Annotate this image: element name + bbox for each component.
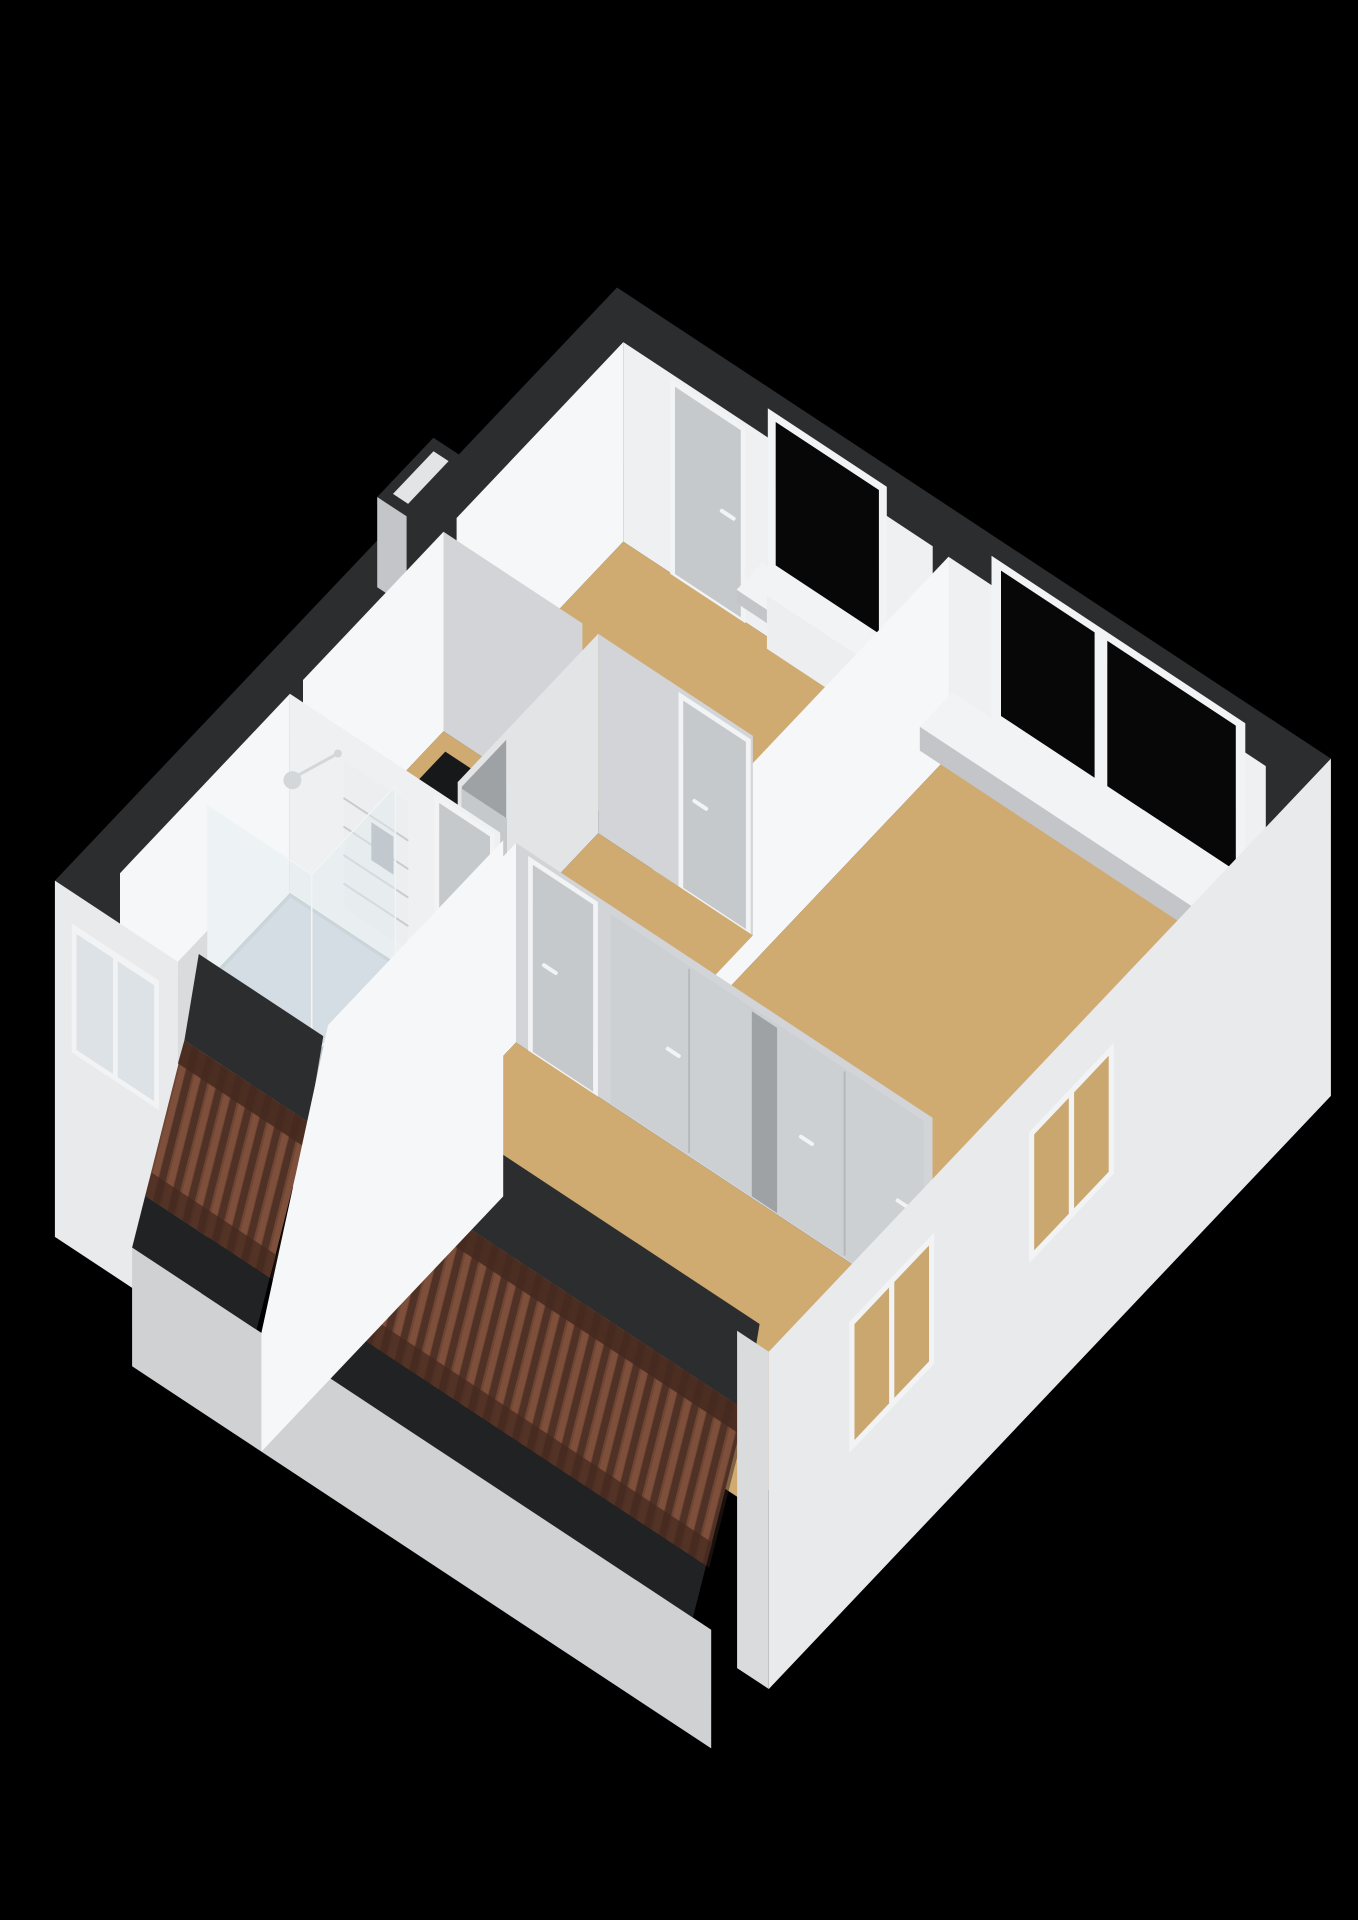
bathroom-window-glass (118, 961, 155, 1101)
floorplan-3d-render (0, 0, 1358, 1920)
shower-mount (334, 750, 342, 758)
bathroom-window-glass (77, 934, 114, 1074)
wall-recess (752, 1011, 777, 1213)
facade-corner-return (737, 1331, 769, 1689)
floorplan-canvas (0, 0, 1358, 1920)
bedroom3-door (533, 865, 593, 1092)
